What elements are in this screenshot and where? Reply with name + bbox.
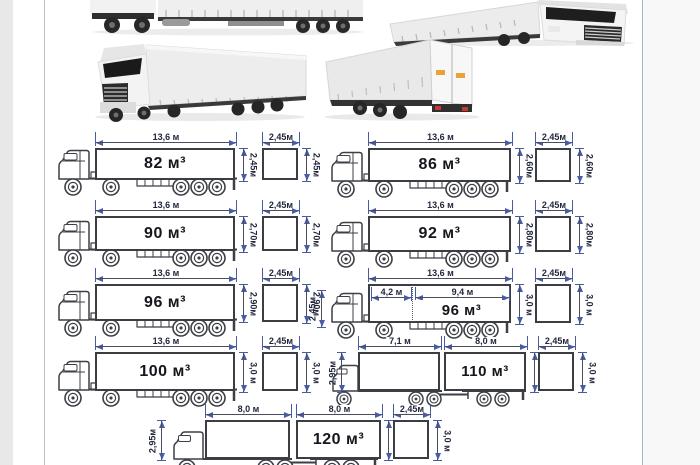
trailer-box: 120 м³	[296, 420, 381, 459]
trailer-box: 86 м³	[368, 148, 511, 182]
pallet-square	[535, 284, 571, 323]
height-dimension: 3,0 м	[433, 420, 442, 461]
truck-length-dimension: 7,1 м	[358, 336, 442, 350]
volume-label: 96 м³	[144, 294, 186, 312]
pallet-square	[262, 352, 298, 391]
pallet-square	[393, 420, 429, 459]
photo-three-quarter-front-truck	[88, 40, 313, 122]
trailer-length-dimension: 8,0 м	[444, 336, 528, 350]
height-dimension: 2,60м	[575, 148, 584, 184]
width-dimension: 2,45м	[535, 268, 573, 282]
pallet-square	[535, 216, 571, 252]
volume-label: 90 м³	[144, 225, 186, 243]
height-dimension: 3,0 м	[302, 352, 311, 393]
frame-right-line	[642, 0, 643, 465]
volume-label: 110 м³	[461, 363, 508, 380]
cross-section-96-jumbo: 2,45м 3,0 м	[535, 268, 595, 328]
pallet-square	[262, 148, 298, 180]
cross-section-82: 2,45м 2,45м	[262, 132, 322, 192]
volume-label: 120 м³	[313, 431, 364, 449]
width-dimension: 2,45м	[535, 200, 573, 214]
volume-label: 100 м³	[139, 363, 190, 381]
height-dimension: 2,90м	[239, 284, 248, 323]
height-dimension: 2,70м	[239, 216, 248, 253]
height-dimension: 3,0 м	[575, 284, 584, 325]
volume-label: 92 м³	[419, 225, 461, 243]
truck-volume-diagram-page: 82 м³ 13,6 м 2,45м 2,45м 2,45м 86 м³ 13,…	[0, 0, 700, 465]
width-dimension: 2,45м	[262, 132, 300, 146]
cross-section-90: 2,45м 2,70м	[262, 200, 322, 260]
trailer-box: 110 м³	[444, 352, 526, 391]
rear-section-dimension: 9,4 м	[415, 287, 510, 301]
photo-side-view-truck	[78, 0, 370, 36]
pallet-square	[262, 284, 298, 322]
pallet-square	[262, 216, 298, 251]
height-dimension: 2,80м	[575, 216, 584, 254]
volume-label: 82 м³	[144, 155, 186, 173]
outer-left-strip	[0, 0, 13, 465]
cross-section-86: 2,45м 2,60м	[535, 132, 595, 192]
length-dimension: 13,6 м	[95, 268, 237, 282]
length-dimension: 13,6 м	[95, 200, 237, 214]
trailer-length-dimension: 8,0 м	[296, 404, 383, 418]
truck-length-dimension: 8,0 м	[205, 404, 292, 418]
truck-box	[358, 352, 440, 391]
height-dimension: 3,0 м	[384, 420, 393, 461]
outer-right-strip	[643, 0, 700, 465]
length-dimension: 13,6 м	[368, 268, 513, 282]
cab-height-dimension: 2,45м	[317, 290, 326, 328]
box-section-divider	[412, 285, 413, 322]
cross-section-100: 2,45м 3,0 м	[262, 336, 322, 396]
length-dimension: 13,6 м	[95, 132, 237, 146]
trailer-box: 90 м³	[95, 216, 235, 251]
height-dimension: 3,0 м	[239, 352, 248, 393]
length-dimension: 13,6 м	[368, 200, 513, 214]
cross-section-120: 2,45м 3,0 м	[393, 404, 453, 464]
volume-label: 96 м³	[442, 302, 481, 319]
width-dimension: 2,45м	[262, 200, 300, 214]
trailer-box: 100 м³	[95, 352, 235, 391]
width-dimension: 2,45м	[262, 336, 300, 350]
volume-area: 96 м³	[414, 300, 509, 321]
width-dimension: 2,45м	[535, 132, 573, 146]
width-dimension: 2,45м	[262, 268, 300, 282]
height-dimension: 2,60м	[515, 148, 524, 184]
pallet-square	[535, 148, 571, 182]
trailer-box: 96 м³	[95, 284, 235, 321]
frame-left-line	[44, 0, 45, 465]
front-section-dimension: 4,2 м	[371, 287, 412, 301]
height-dimension: 3,0 м	[578, 352, 587, 393]
width-dimension: 2,45м	[393, 404, 431, 418]
cross-section-110: 2,45м 3,0 м	[538, 336, 598, 396]
length-dimension: 13,6 м	[368, 132, 513, 146]
left-height-dimension: 2,95м	[337, 352, 346, 393]
trailer-box: 92 м³	[368, 216, 511, 252]
height-dimension: 2,45м	[302, 148, 311, 182]
pallet-square	[538, 352, 574, 391]
truck-diagram-120: 120 м³ 8,0 м 8,0 м 3,0 м 2,95м	[170, 402, 430, 465]
cross-section-92: 2,45м 2,80м	[535, 200, 595, 260]
truck-box	[205, 420, 290, 459]
photo-three-quarter-rear-truck	[322, 36, 487, 122]
left-height-dimension: 2,95м	[157, 420, 166, 461]
height-dimension: 3,0 м	[515, 284, 524, 325]
width-dimension: 2,45м	[538, 336, 576, 350]
volume-label: 86 м³	[419, 156, 461, 174]
trailer-box: 82 м³	[95, 148, 235, 180]
height-dimension: 2,45м	[239, 148, 248, 182]
height-dimension: 2,80м	[515, 216, 524, 254]
height-dimension: 2,70м	[302, 216, 311, 253]
length-dimension: 13,6 м	[95, 336, 237, 350]
